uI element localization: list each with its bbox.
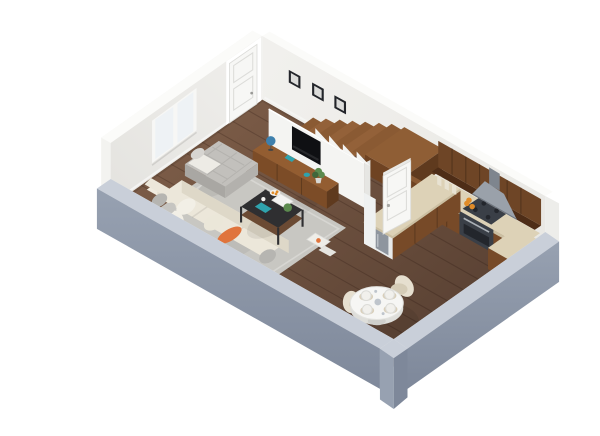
centerpiece — [374, 299, 381, 306]
fruit-slice — [276, 190, 279, 193]
globe-base — [268, 149, 273, 151]
floor-plan-render — [0, 0, 600, 436]
fruit-slice — [272, 191, 275, 194]
plate — [386, 303, 396, 313]
table-plant — [283, 203, 291, 211]
teal-round-box — [304, 173, 310, 177]
plate — [385, 290, 395, 300]
cup — [382, 312, 385, 315]
plant-leaves — [312, 172, 318, 178]
plate — [361, 291, 371, 301]
globe — [266, 136, 276, 146]
cup — [374, 290, 377, 293]
door-handle — [387, 204, 390, 207]
entry-door-handle — [250, 92, 253, 95]
plate — [362, 305, 372, 315]
partition-pillar — [364, 193, 376, 250]
building — [97, 31, 559, 409]
plant-leaves — [318, 172, 324, 178]
magazine-artwork — [316, 238, 321, 243]
plant-pot — [315, 178, 321, 183]
fruit-plate — [270, 190, 281, 196]
corner-face — [380, 349, 394, 409]
fruit — [469, 204, 475, 210]
floor-plan-svg — [0, 0, 600, 436]
mug — [261, 197, 265, 201]
fruit — [466, 197, 472, 203]
corner-face — [394, 349, 408, 409]
burner — [486, 215, 491, 220]
